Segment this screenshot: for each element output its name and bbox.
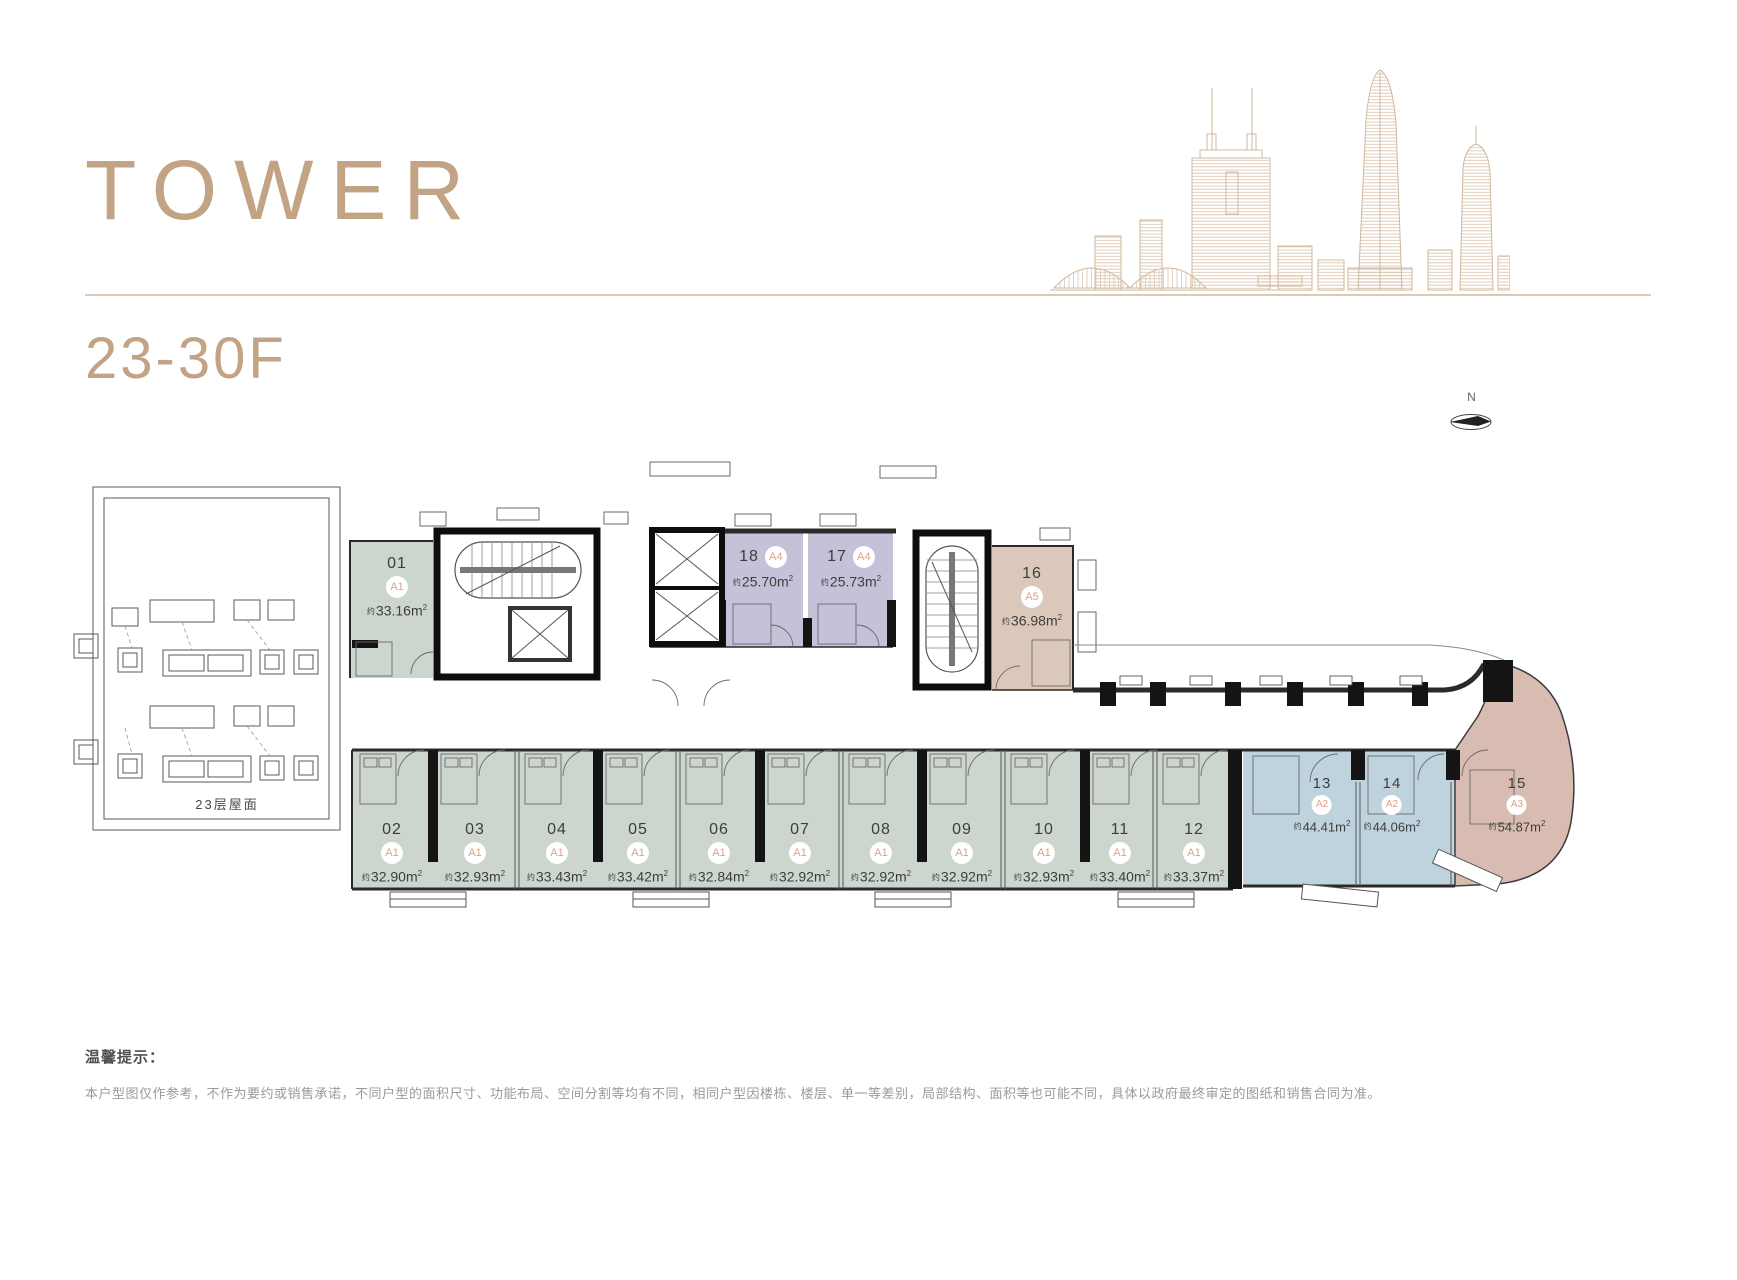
unit-type-badge: A1	[381, 842, 403, 864]
unit-type-badge: A1	[870, 842, 892, 864]
notice-body: 本户型图仅作参考，不作为要约或销售承诺，不同户型的面积尺寸、功能布局、空间分割等…	[85, 1084, 1605, 1104]
unit-number: 14	[1364, 776, 1421, 792]
unit-area: 约33.42m2	[608, 866, 668, 885]
unit-number: 10	[1014, 822, 1074, 838]
unit-label-02: 02 A1 约32.90m2	[362, 822, 422, 885]
unit-type-badge: A3	[1507, 795, 1527, 815]
unit-area: 约32.90m2	[362, 866, 422, 885]
unit-number: 11	[1090, 822, 1150, 838]
unit-type-badge: A4	[853, 546, 875, 568]
unit-number: 05	[608, 822, 668, 838]
unit-type-badge: A2	[1312, 795, 1332, 815]
unit-label-18: 18A4 约25.70m2	[733, 546, 793, 590]
unit-number: 12	[1164, 822, 1224, 838]
unit-number: 18	[739, 549, 759, 565]
unit-number: 04	[527, 822, 587, 838]
unit-label-06: 06 A1 约32.84m2	[689, 822, 749, 885]
unit-number: 08	[851, 822, 911, 838]
unit-label-04: 04 A1 约33.43m2	[527, 822, 587, 885]
unit-type-badge: A1	[1183, 842, 1205, 864]
unit-area: 约25.73m2	[821, 571, 881, 590]
unit-type-badge: A1	[1109, 842, 1131, 864]
unit-area: 约25.70m2	[733, 571, 793, 590]
unit-label-09: 09 A1 约32.92m2	[932, 822, 992, 885]
unit-number: 13	[1294, 776, 1351, 792]
unit-label-07: 07 A1 约32.92m2	[770, 822, 830, 885]
unit-number: 09	[932, 822, 992, 838]
unit-label-15: 15 A3 约54.87m2	[1489, 776, 1546, 834]
unit-type-badge: A1	[951, 842, 973, 864]
unit-number: 06	[689, 822, 749, 838]
roof-terrace-label: 23层屋面	[195, 794, 258, 813]
unit-number: 15	[1489, 776, 1546, 792]
unit-area: 约33.16m2	[367, 600, 427, 619]
unit-label-10: 10 A1 约32.93m2	[1014, 822, 1074, 885]
unit-number: 07	[770, 822, 830, 838]
unit-label-05: 05 A1 约33.42m2	[608, 822, 668, 885]
unit-type-badge: A1	[546, 842, 568, 864]
unit-area: 约33.43m2	[527, 866, 587, 885]
unit-area: 约36.98m2	[1002, 610, 1062, 629]
unit-area: 约32.84m2	[689, 866, 749, 885]
unit-label-11: 11 A1 约33.40m2	[1090, 822, 1150, 885]
unit-type-badge: A4	[765, 546, 787, 568]
unit-type-badge: A1	[386, 576, 408, 598]
unit-number: 16	[1002, 566, 1062, 582]
unit-area: 约44.41m2	[1294, 816, 1351, 834]
unit-label-08: 08 A1 约32.92m2	[851, 822, 911, 885]
unit-type-badge: A1	[464, 842, 486, 864]
unit-label-01: 01 A1 约33.16m2	[367, 556, 427, 619]
notice-title: 温馨提示：	[85, 1046, 165, 1067]
unit-label-03: 03 A1 约32.93m2	[445, 822, 505, 885]
unit-type-badge: A1	[708, 842, 730, 864]
unit-area: 约33.37m2	[1164, 866, 1224, 885]
unit-number: 02	[362, 822, 422, 838]
unit-area: 约44.06m2	[1364, 816, 1421, 834]
unit-label-12: 12 A1 约33.37m2	[1164, 822, 1224, 885]
unit-area: 约32.92m2	[770, 866, 830, 885]
unit-number: 17	[827, 549, 847, 565]
unit-type-badge: A2	[1382, 795, 1402, 815]
unit-label-14: 14 A2 约44.06m2	[1364, 776, 1421, 834]
unit-area: 约33.40m2	[1090, 866, 1150, 885]
unit-number: 01	[367, 556, 427, 572]
unit-type-badge: A1	[1033, 842, 1055, 864]
unit-area: 约32.92m2	[851, 866, 911, 885]
unit-type-badge: A5	[1021, 586, 1043, 608]
unit-label-13: 13 A2 约44.41m2	[1294, 776, 1351, 834]
unit-area: 约32.93m2	[445, 866, 505, 885]
unit-number: 03	[445, 822, 505, 838]
unit-area: 约32.92m2	[932, 866, 992, 885]
unit-label-16: 16 A5 约36.98m2	[1002, 566, 1062, 629]
unit-area: 约32.93m2	[1014, 866, 1074, 885]
unit-area: 约54.87m2	[1489, 816, 1546, 834]
unit-type-badge: A1	[627, 842, 649, 864]
unit-label-17: 17A4 约25.73m2	[821, 546, 881, 590]
unit-type-badge: A1	[789, 842, 811, 864]
